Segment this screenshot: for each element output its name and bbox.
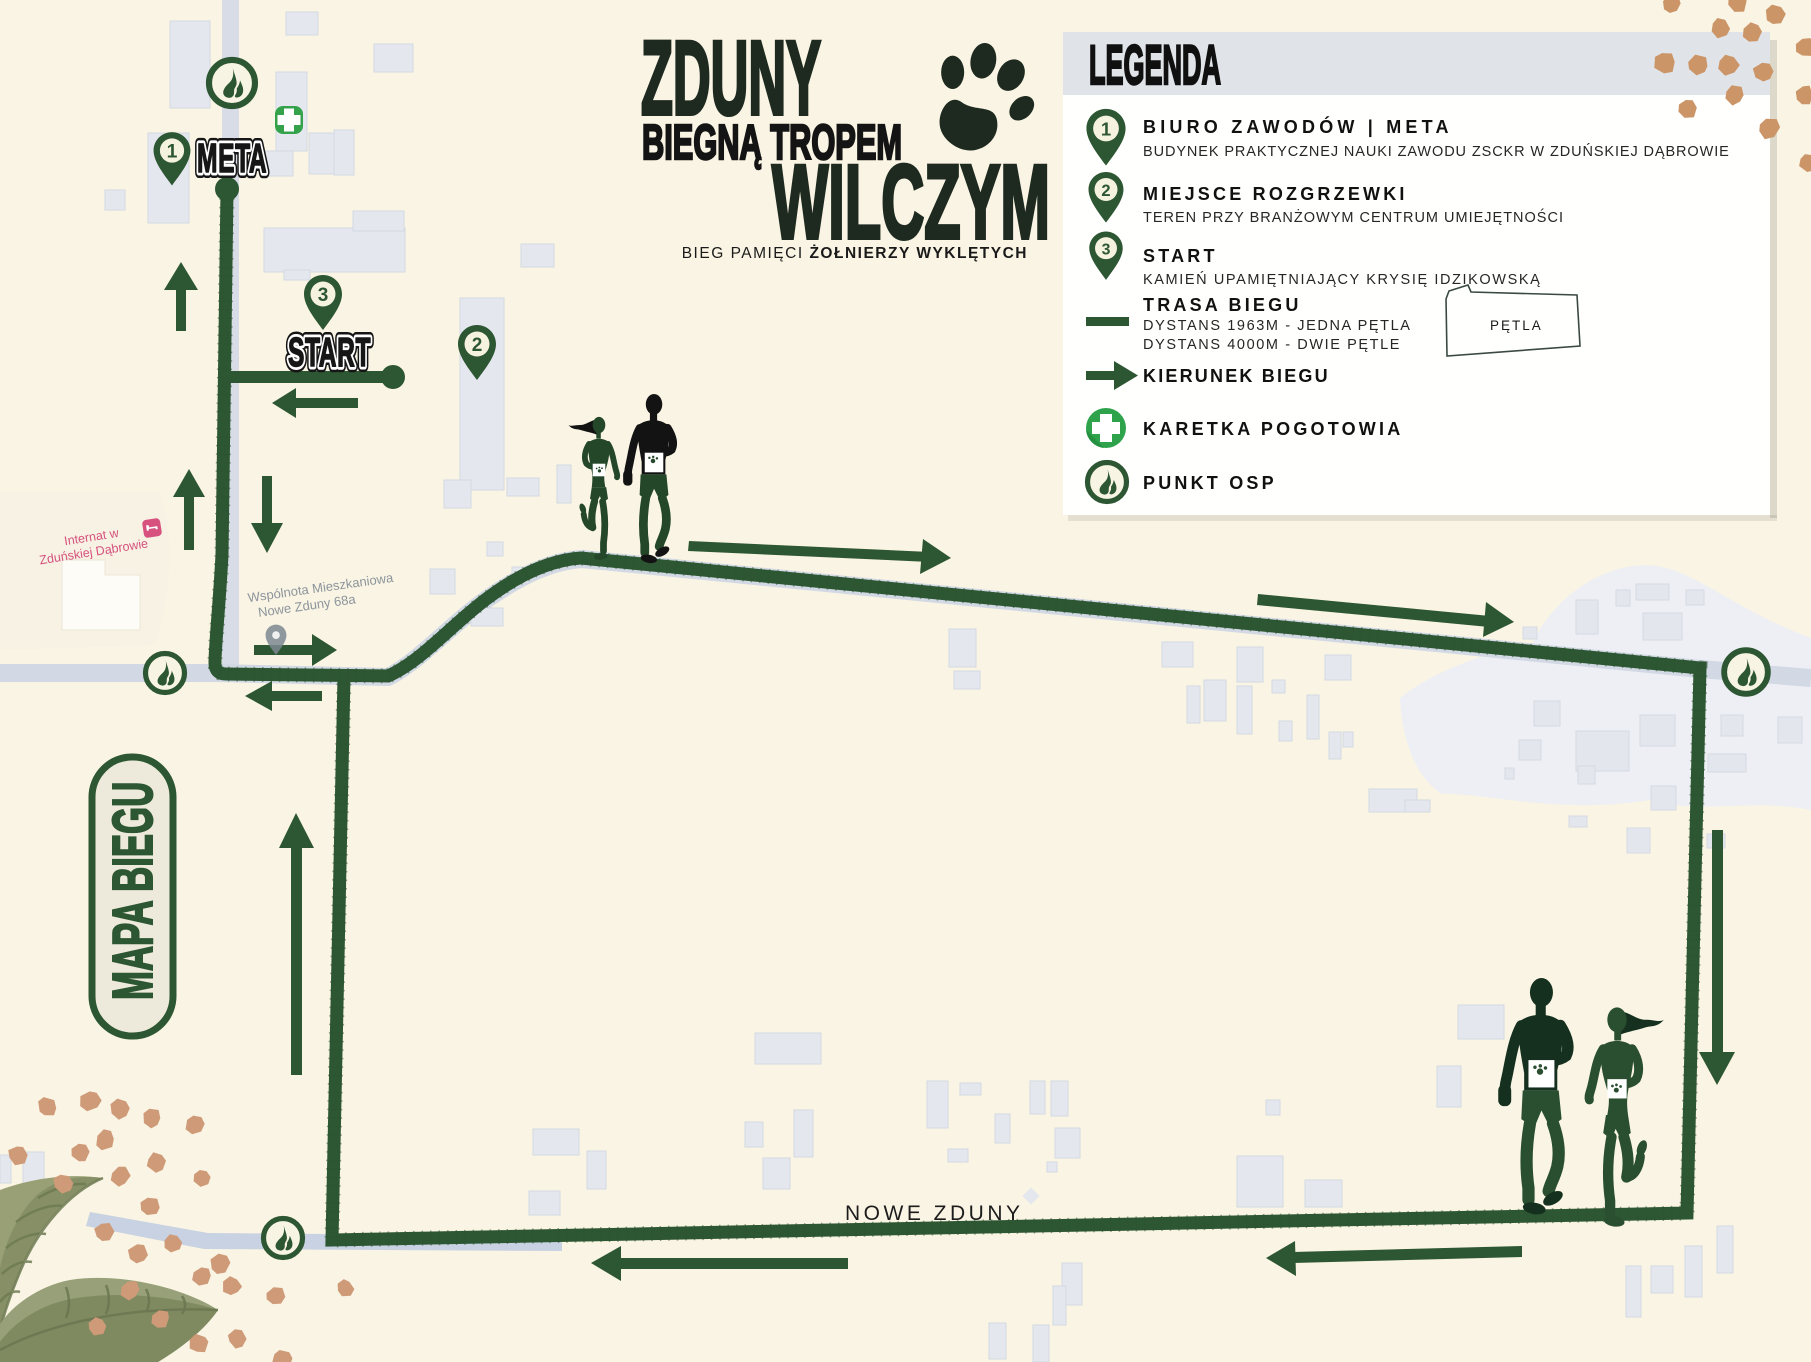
svg-text:2: 2	[472, 335, 483, 356]
svg-text:KARETKA POGOTOWIA: KARETKA POGOTOWIA	[1143, 419, 1403, 439]
svg-text:NOWE ZDUNY: NOWE ZDUNY	[845, 1202, 1024, 1225]
svg-text:BIURO ZAWODÓW | META: BIURO ZAWODÓW | META	[1143, 116, 1453, 137]
svg-text:KIERUNEK BIEGU: KIERUNEK BIEGU	[1143, 366, 1330, 386]
svg-text:WILCZYM: WILCZYM	[772, 144, 1050, 261]
svg-text:META: META	[197, 136, 267, 182]
svg-text:KAMIEŃ UPAMIĘTNIAJĄCY KRYSIĘ I: KAMIEŃ UPAMIĘTNIAJĄCY KRYSIĘ IDZIKOWSKĄ	[1143, 271, 1541, 288]
svg-text:MAPA BIEGU: MAPA BIEGU	[100, 782, 164, 1000]
svg-text:TEREN PRZY BRANŻOWYM CENTRUM U: TEREN PRZY BRANŻOWYM CENTRUM UMIEJĘTNOŚC…	[1143, 208, 1564, 226]
svg-text:BUDYNEK PRAKTYCZNEJ NAUKI ZAWO: BUDYNEK PRAKTYCZNEJ NAUKI ZAWODU ZSCKR W…	[1143, 143, 1730, 160]
svg-text:3: 3	[318, 285, 329, 306]
svg-text:DYSTANS 4000M - DWIE PĘTLE: DYSTANS 4000M - DWIE PĘTLE	[1143, 337, 1401, 353]
svg-text:DYSTANS 1963M - JEDNA PĘTLA: DYSTANS 1963M - JEDNA PĘTLA	[1143, 318, 1412, 334]
svg-text:BIEG PAMIĘCI ŻOŁNIERZY WYKLĘTY: BIEG PAMIĘCI ŻOŁNIERZY WYKLĘTYCH	[682, 245, 1028, 262]
svg-text:1: 1	[1101, 119, 1111, 140]
svg-text:PĘTLA: PĘTLA	[1490, 318, 1543, 333]
svg-text:START: START	[1143, 246, 1218, 266]
svg-text:PUNKT OSP: PUNKT OSP	[1143, 473, 1277, 493]
svg-text:START: START	[288, 330, 371, 376]
svg-text:2: 2	[1101, 181, 1110, 200]
svg-text:1: 1	[167, 140, 178, 162]
svg-text:3: 3	[1102, 241, 1111, 258]
svg-text:MIEJSCE ROZGRZEWKI: MIEJSCE ROZGRZEWKI	[1143, 184, 1408, 204]
svg-text:TRASA BIEGU: TRASA BIEGU	[1143, 295, 1302, 315]
svg-text:LEGENDA: LEGENDA	[1089, 33, 1221, 96]
